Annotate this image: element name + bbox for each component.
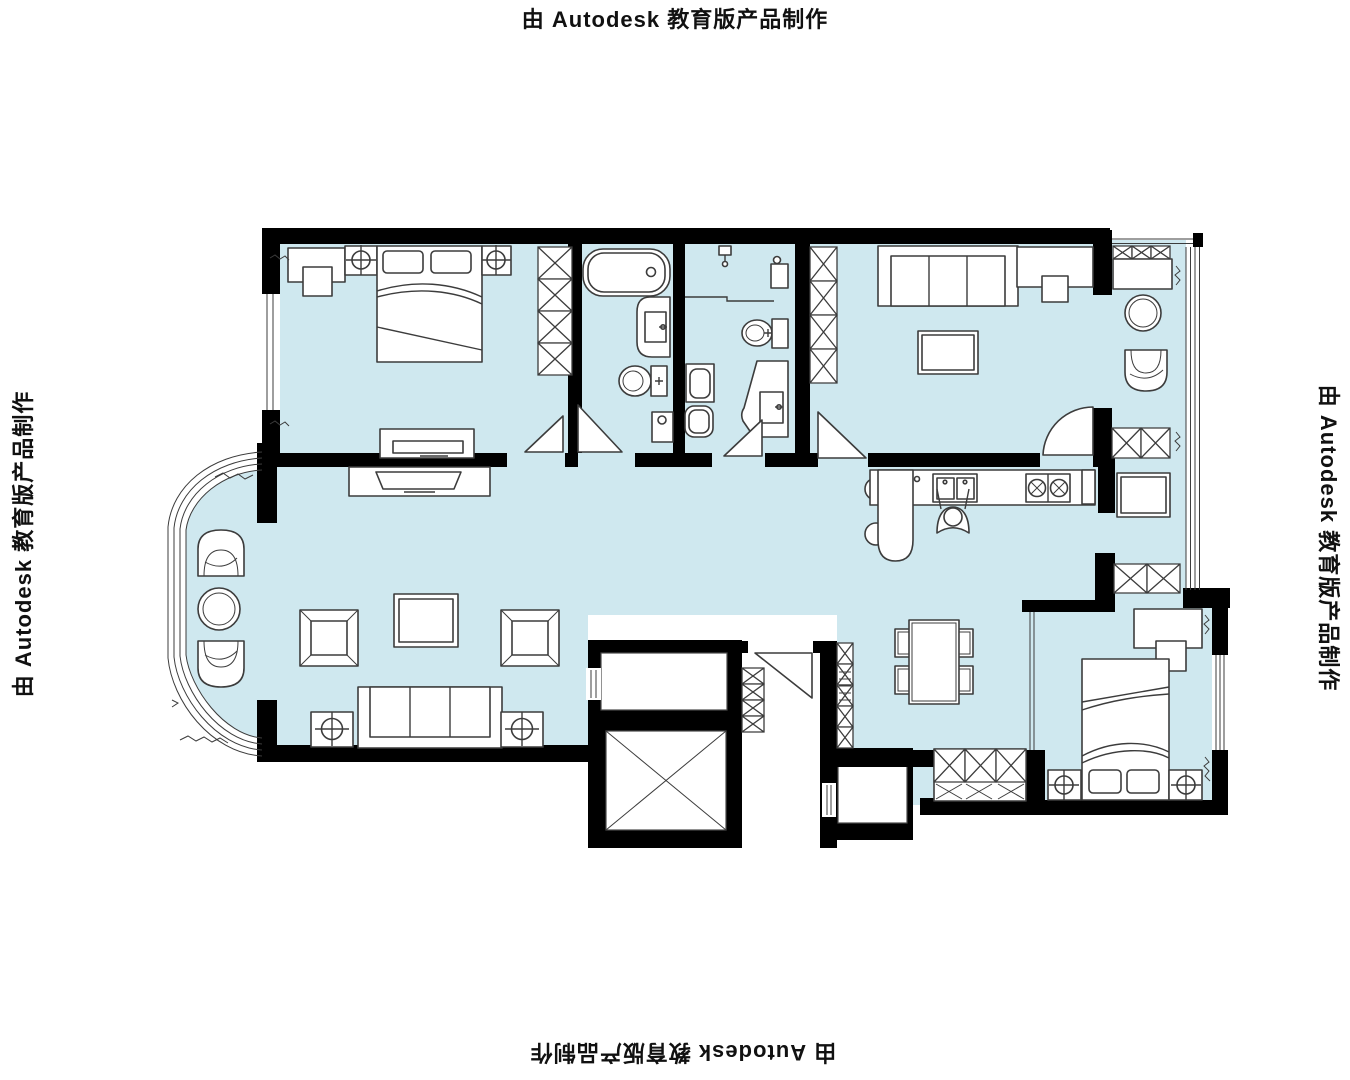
stool: [1042, 276, 1068, 302]
vanity-basin: [637, 297, 670, 357]
tv-console: [349, 467, 490, 496]
bedroom1-left-window: [262, 294, 280, 410]
wardrobe-x-cabinet: [810, 247, 837, 383]
door-panel: [1082, 470, 1095, 504]
side-table-right: [501, 712, 543, 747]
floor-drain-fixture: [652, 412, 673, 442]
tall-storage-cabinet: [837, 643, 853, 748]
storage-x-cabinet: [1114, 564, 1180, 593]
bedroom2-right-window: [1212, 655, 1228, 750]
shower-shelf: [771, 264, 788, 288]
side-table-left: [311, 712, 353, 747]
storage-x-row: [1113, 246, 1170, 259]
pillow: [1089, 770, 1121, 793]
armchair: [501, 610, 559, 666]
desk-chair: [303, 267, 332, 296]
armchair: [300, 610, 358, 666]
laundry-basket: [685, 406, 713, 437]
armchair: [198, 530, 244, 576]
armchair: [1125, 350, 1167, 391]
toilet: [619, 366, 667, 396]
elevator-core: [586, 640, 755, 848]
sofa-three-seat: [358, 687, 502, 748]
double-sink: [933, 474, 977, 502]
lobby-vent-window: [586, 668, 601, 700]
elevator-lobby: [601, 653, 727, 710]
pillow: [1127, 770, 1159, 793]
duct-vent-window: [822, 783, 836, 817]
corridor-meter-cabinet: [742, 668, 764, 732]
round-side-table: [1125, 295, 1161, 331]
double-bed: [377, 246, 482, 362]
floor-plan-canvas: [0, 0, 1350, 1080]
storage-x-cabinet: [1112, 428, 1170, 458]
page: { "watermark": { "top": "由 Autodesk 教育版产…: [0, 0, 1350, 1080]
armchair: [198, 641, 244, 687]
coffee-table: [394, 594, 458, 647]
coffee-table: [918, 331, 978, 374]
tv-symbol: [393, 441, 463, 453]
tv-symbol: [376, 472, 461, 489]
bar-counter: [878, 470, 913, 561]
wardrobe-x-cabinet: [538, 247, 572, 375]
bathtub: [583, 249, 670, 296]
pillow: [431, 251, 471, 273]
dining-table: [909, 620, 959, 704]
desk: [1113, 259, 1172, 289]
round-side-table: [198, 588, 240, 630]
toilet: [742, 319, 788, 348]
wall-hook: [774, 257, 781, 264]
refrigerator: [1117, 473, 1170, 517]
washing-machine: [686, 364, 714, 402]
pillow: [383, 251, 423, 273]
sideboard-x-cabinet: [934, 749, 1026, 801]
window-hatch-mark: [172, 700, 178, 707]
sofa-three-seat: [878, 246, 1018, 306]
double-bed: [1082, 659, 1169, 800]
tv-console: [380, 429, 474, 458]
cooktop-two-burners: [1026, 474, 1070, 502]
